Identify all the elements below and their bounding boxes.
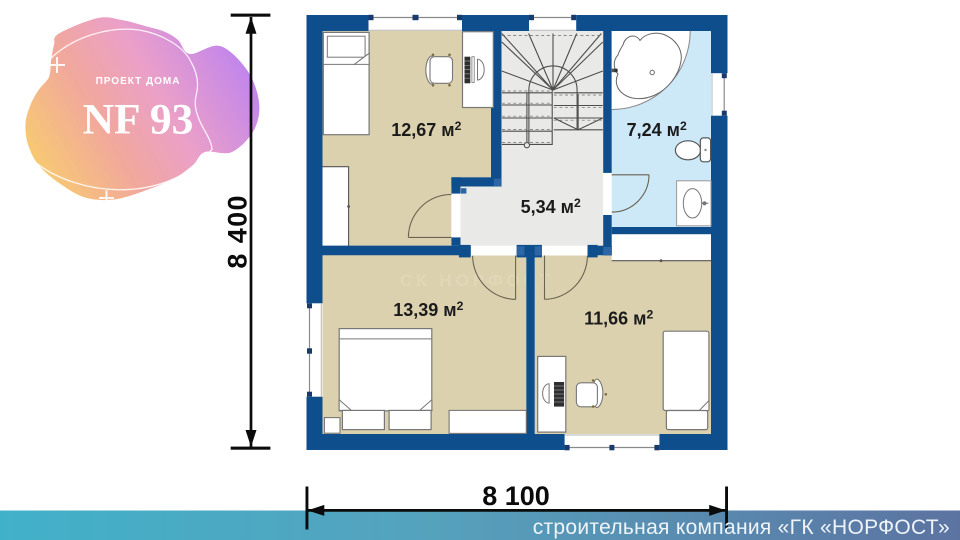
svg-text:NF 93: NF 93 xyxy=(83,96,194,144)
svg-text:7,24 м2: 7,24 м2 xyxy=(627,119,687,140)
svg-text:8 400: 8 400 xyxy=(223,194,253,269)
svg-text:строительная компания «ГК «НОР: строительная компания «ГК «НОРФОСТ» xyxy=(533,516,950,539)
svg-text:8 100: 8 100 xyxy=(482,481,550,511)
svg-text:ПРОЕКТ ДОМА: ПРОЕКТ ДОМА xyxy=(96,76,181,87)
svg-text:11,66 м2: 11,66 м2 xyxy=(584,308,653,329)
svg-text:12,67 м2: 12,67 м2 xyxy=(391,119,461,140)
svg-text:13,39 м2: 13,39 м2 xyxy=(393,299,463,320)
svg-text:5,34 м2: 5,34 м2 xyxy=(521,196,581,217)
